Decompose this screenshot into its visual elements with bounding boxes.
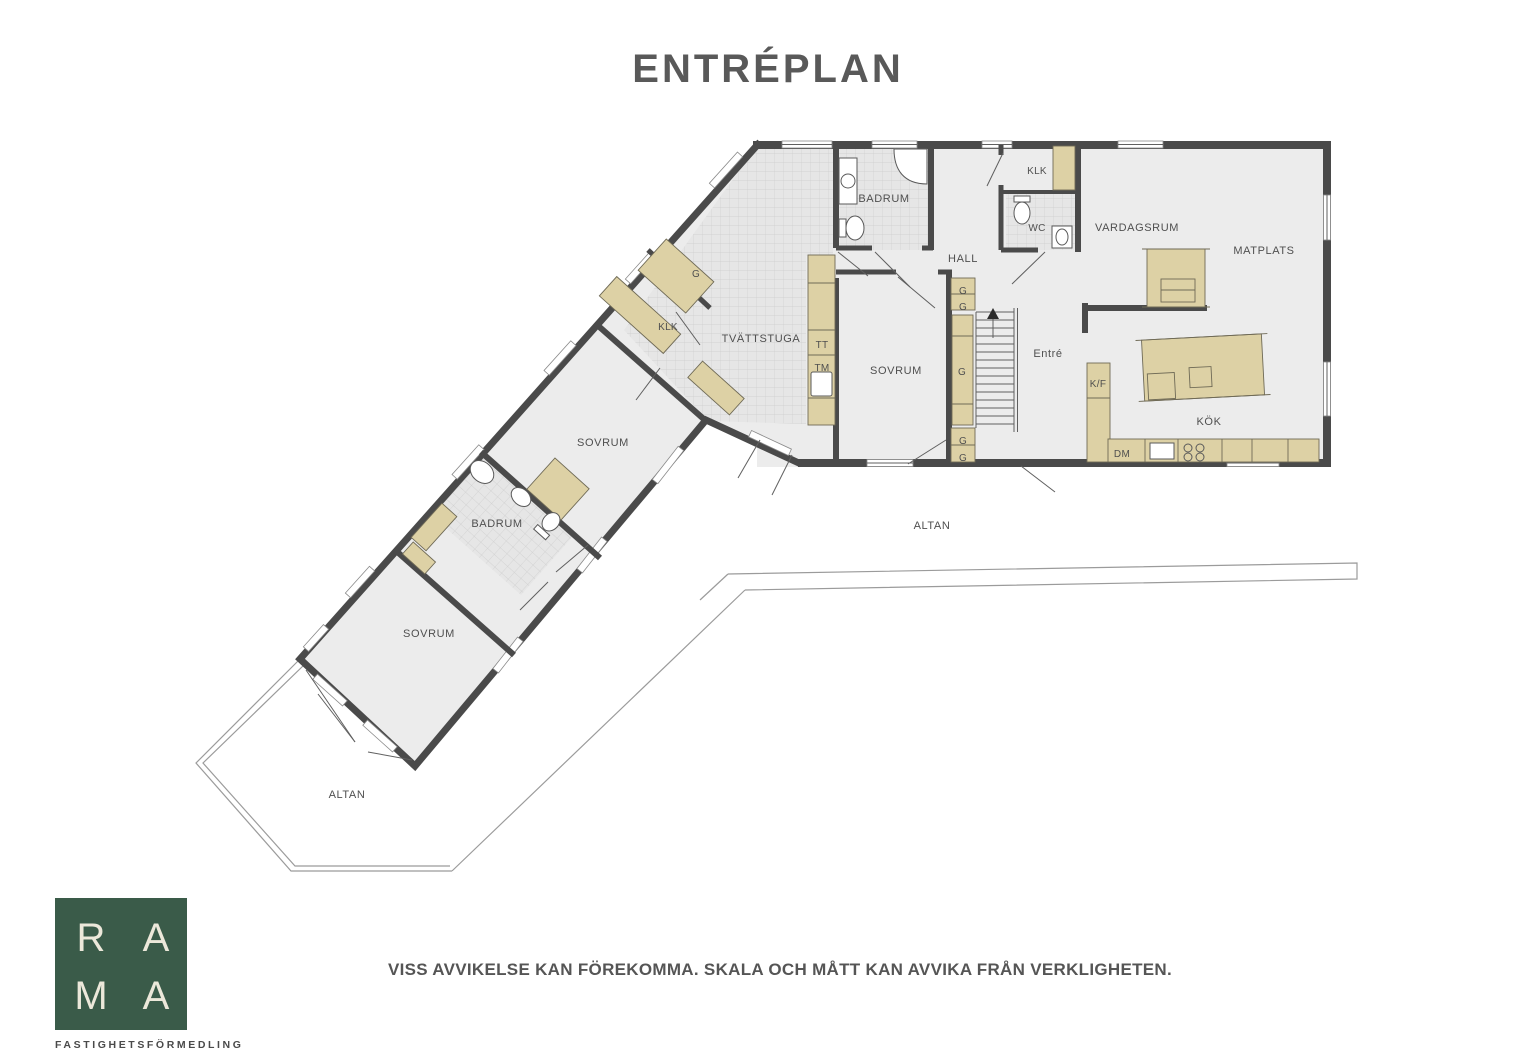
toilet-icon	[1014, 196, 1030, 224]
g-label: G	[958, 367, 966, 378]
kitchen-counter	[1108, 439, 1319, 462]
fridge-freezer	[1087, 363, 1110, 462]
logo-subtitle: FASTIGHETSFÖRMEDLING	[55, 1038, 244, 1051]
toilet-icon	[839, 216, 864, 240]
company-logo: R A M A FASTIGHETSFÖRMEDLING	[55, 898, 244, 1051]
room-label-altan-left: ALTAN	[329, 789, 366, 801]
window	[872, 141, 917, 148]
room-label-matplats: MATPLATS	[1233, 245, 1294, 257]
window	[867, 460, 913, 467]
room-label-klk-wing: KLK	[658, 322, 678, 333]
label-tt: TT	[816, 340, 829, 351]
dining-table	[1136, 334, 1271, 402]
fireplace-block	[1142, 249, 1210, 307]
room-label-tvattstuga: TVÄTTSTUGA	[722, 333, 801, 345]
logo-letter-a2: A	[143, 974, 170, 1018]
room-label-hall: HALL	[948, 253, 978, 265]
window	[1118, 141, 1163, 148]
room-label-entre: Entré	[1033, 348, 1062, 360]
sink-icon	[841, 174, 855, 188]
room-label-kok: KÖK	[1196, 416, 1221, 428]
g-label: G	[959, 286, 967, 297]
g-label: G	[692, 269, 700, 280]
page-title: ENTRÉPLAN	[632, 46, 903, 91]
room-label-klk-top: KLK	[1027, 166, 1047, 177]
deck-right-edge	[728, 563, 1357, 590]
room-label-wc: WC	[1028, 223, 1045, 234]
wc-sink-bowl-icon	[1056, 229, 1068, 245]
deck-walkway-inner	[700, 574, 728, 600]
disclaimer-text: VISS AVVIKELSE KAN FÖREKOMMA. SKALA OCH …	[388, 960, 1172, 979]
room-label-vardagsrum: VARDAGSRUM	[1095, 222, 1179, 234]
room-label-badrum-top: BADRUM	[858, 193, 909, 205]
room-label-sovrum-low: SOVRUM	[403, 628, 455, 640]
floorplan-drawing: ENTRÉPLAN	[0, 0, 1535, 1063]
logo-letter-r: R	[77, 916, 106, 960]
wardrobe-klk-top	[1053, 146, 1075, 190]
g-label: G	[959, 453, 967, 464]
room-label-badrum-wing: BADRUM	[471, 518, 522, 530]
logo-letter-a1: A	[143, 916, 170, 960]
window	[1324, 362, 1331, 416]
label-kf: K/F	[1090, 379, 1106, 390]
room-label-altan-right: ALTAN	[914, 520, 951, 532]
floorplan-page: ENTRÉPLAN	[0, 0, 1535, 1063]
kitchen-sink-icon	[1150, 443, 1174, 459]
washing-machine-icon	[811, 372, 832, 396]
room-label-sovrum-mid: SOVRUM	[577, 437, 629, 449]
window	[982, 141, 1012, 148]
g-label: G	[959, 436, 967, 447]
room-label-sovrum-main: SOVRUM	[870, 365, 922, 377]
g-label: G	[959, 302, 967, 313]
label-dm: DM	[1114, 449, 1130, 460]
logo-letter-m: M	[74, 974, 107, 1018]
window	[782, 141, 832, 148]
label-tm: TM	[814, 363, 829, 374]
window	[1324, 195, 1331, 240]
